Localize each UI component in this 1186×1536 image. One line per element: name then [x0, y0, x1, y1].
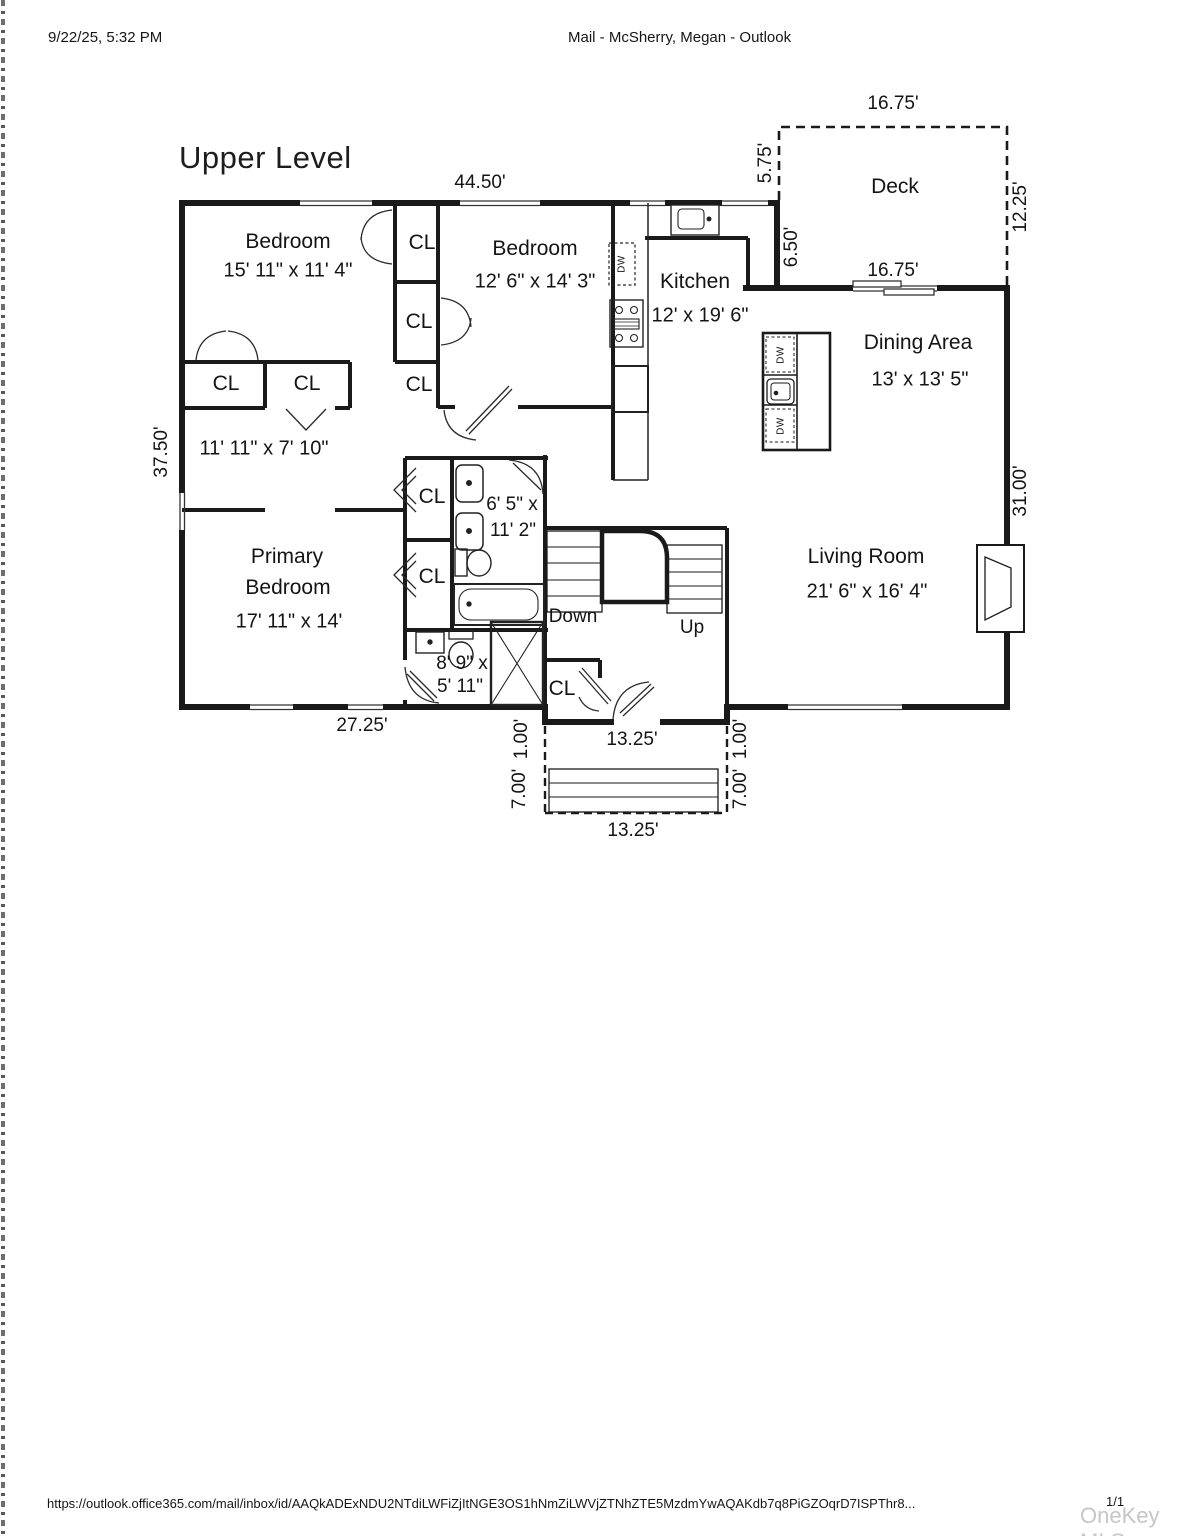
dimension-label: 1.00' [730, 719, 752, 760]
stairs-down-label: Down [549, 606, 598, 628]
toilet [467, 550, 491, 576]
closet-label: CL [419, 565, 446, 589]
closet-label: CL [213, 372, 240, 396]
dimension-label: 16.75' [867, 93, 918, 115]
floorplan-drawing [0, 0, 1186, 1536]
room-dims-hall: 11' 11" x 7' 10" [200, 438, 329, 461]
room-label-primary-2: Bedroom [245, 576, 330, 600]
closet-label: CL [549, 677, 576, 701]
room-label-dining: Dining Area [864, 331, 973, 355]
stairs-down-treads [547, 531, 602, 612]
stairs-landing-wall [602, 531, 667, 602]
room-dims-bedroom2: 12' 6" x 14' 3" [475, 271, 596, 294]
dimension-label: 5.75' [755, 143, 777, 184]
room-dims-dining: 13' x 13' 5" [871, 369, 968, 392]
toilet-tank [455, 549, 467, 576]
dimension-label: 44.50' [454, 172, 505, 194]
closet-label: CL [409, 231, 436, 255]
room-dims-kitchen: 12' x 19' 6" [651, 305, 748, 328]
room-label-deck: Deck [871, 175, 919, 199]
dimension-label: 6.50' [781, 227, 803, 268]
dimension-label: 12.25' [1010, 181, 1032, 232]
stairs-up-treads [667, 545, 722, 613]
refrigerator [612, 366, 648, 412]
dimension-label: 7.00' [509, 769, 531, 810]
room-dims-bedroom1: 15' 11" x 11' 4" [224, 260, 353, 283]
kitchen-fixtures [609, 203, 719, 480]
onekey-mls-watermark: OneKey MLS [1080, 1503, 1186, 1536]
dimension-label: 7.00' [730, 769, 752, 810]
room-label-bedroom1: Bedroom [245, 230, 330, 254]
room-dims-primary: 17' 11" x 14' [236, 611, 343, 634]
closet-label: CL [419, 485, 446, 509]
room-dims-bath-main-1: 6' 5" x [486, 494, 538, 516]
room-label-primary-1: Primary [251, 545, 323, 569]
dimension-label: 16.75' [867, 260, 918, 282]
dimension-label: 31.00' [1010, 465, 1032, 516]
dishwasher-label: DW [776, 346, 787, 364]
fireplace [977, 545, 1024, 632]
dimension-label: 13.25' [606, 729, 657, 751]
room-dims-bath-small-2: 5' 11" [437, 676, 483, 698]
closet-label: CL [406, 310, 433, 334]
kitchen-island [763, 333, 830, 450]
closet-label: CL [406, 373, 433, 397]
stairs [547, 531, 722, 613]
porch-steps [549, 769, 718, 812]
room-dims-living: 21' 6" x 16' 4" [807, 581, 928, 604]
room-label-living: Living Room [808, 545, 925, 569]
closet-label: CL [294, 372, 321, 396]
dimension-label: 13.25' [607, 820, 658, 842]
room-label-kitchen: Kitchen [660, 270, 730, 294]
dimension-label: 37.50' [151, 426, 173, 477]
dishwasher-label: DW [776, 417, 787, 435]
room-dims-bath-small-1: 8' 9" x [436, 653, 488, 675]
room-dims-bath-main-2: 11' 2" [490, 520, 536, 542]
dishwasher-label: DW [617, 255, 628, 273]
dimension-label: 1.00' [511, 719, 533, 760]
footer-url: https://outlook.office365.com/mail/inbox… [47, 1496, 915, 1511]
printed-page: 9/22/25, 5:32 PM Mail - McSherry, Megan … [0, 0, 1186, 1536]
stairs-up-label: Up [680, 617, 704, 639]
dimension-label: 27.25' [336, 715, 387, 737]
room-label-bedroom2: Bedroom [492, 237, 577, 261]
